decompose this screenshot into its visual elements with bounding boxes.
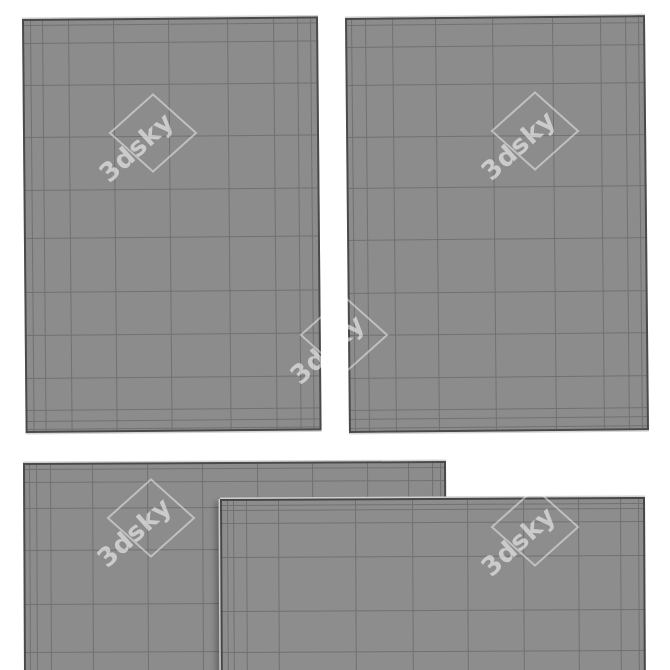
- model-preview-image: 3dsky 3dsky 3dsky 3dsky 3dsky: [0, 0, 670, 670]
- wireframe-panel-top-left: [22, 16, 322, 433]
- wireframe-panel-bottom-front: [220, 497, 646, 670]
- wireframe-panel-top-right: [345, 15, 649, 433]
